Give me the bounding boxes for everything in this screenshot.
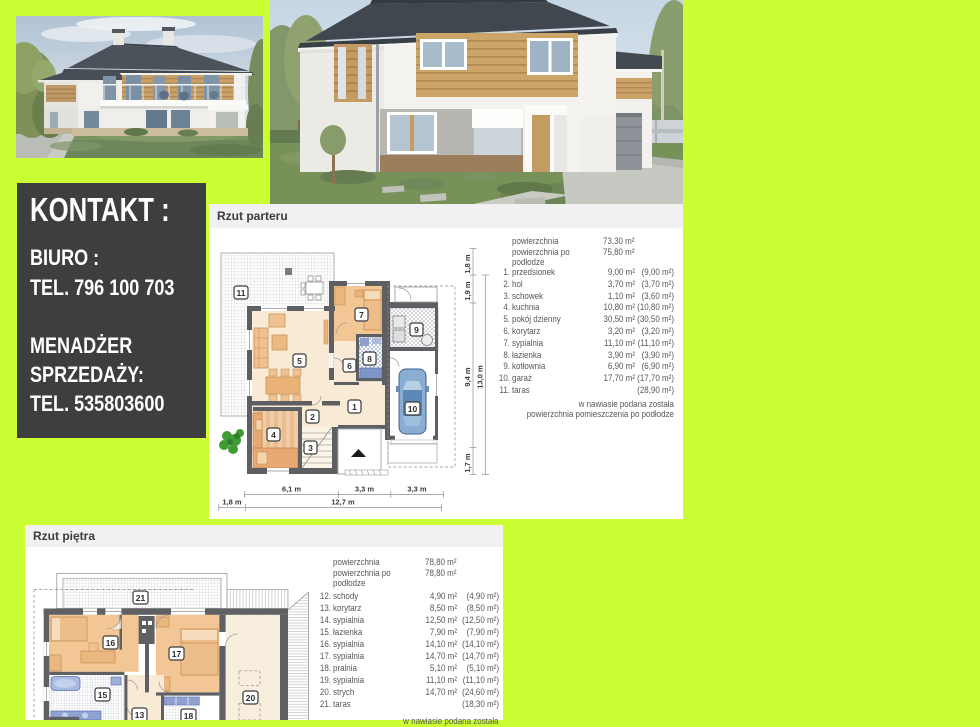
svg-text:10: 10 xyxy=(408,404,418,414)
svg-text:6: 6 xyxy=(347,361,352,371)
svg-text:3,3 m: 3,3 m xyxy=(407,485,427,494)
svg-text:13: 13 xyxy=(135,710,145,720)
svg-text:11: 11 xyxy=(237,288,246,298)
svg-text:6,1 m: 6,1 m xyxy=(282,485,302,494)
svg-text:1,7 m: 1,7 m xyxy=(463,453,472,473)
svg-text:8: 8 xyxy=(367,354,372,364)
svg-text:4: 4 xyxy=(271,430,276,440)
svg-text:20: 20 xyxy=(246,693,256,703)
svg-text:5: 5 xyxy=(297,356,302,366)
svg-text:2: 2 xyxy=(310,412,315,422)
svg-text:3,3 m: 3,3 m xyxy=(355,485,375,494)
svg-text:13,0 m: 13,0 m xyxy=(475,365,484,389)
svg-text:1,8 m: 1,8 m xyxy=(222,498,242,507)
svg-text:15: 15 xyxy=(98,690,108,700)
svg-text:1: 1 xyxy=(352,402,357,412)
svg-text:17: 17 xyxy=(172,649,182,659)
svg-text:12,7 m: 12,7 m xyxy=(331,498,355,507)
svg-text:21: 21 xyxy=(136,593,146,603)
svg-text:7: 7 xyxy=(359,310,364,320)
svg-text:9: 9 xyxy=(414,325,419,335)
svg-text:3: 3 xyxy=(308,443,313,453)
svg-text:18: 18 xyxy=(184,711,194,720)
svg-text:1,9 m: 1,9 m xyxy=(463,281,472,301)
svg-text:9,4 m: 9,4 m xyxy=(463,367,472,387)
svg-text:1,8 m: 1,8 m xyxy=(463,254,472,274)
svg-text:16: 16 xyxy=(106,638,116,648)
